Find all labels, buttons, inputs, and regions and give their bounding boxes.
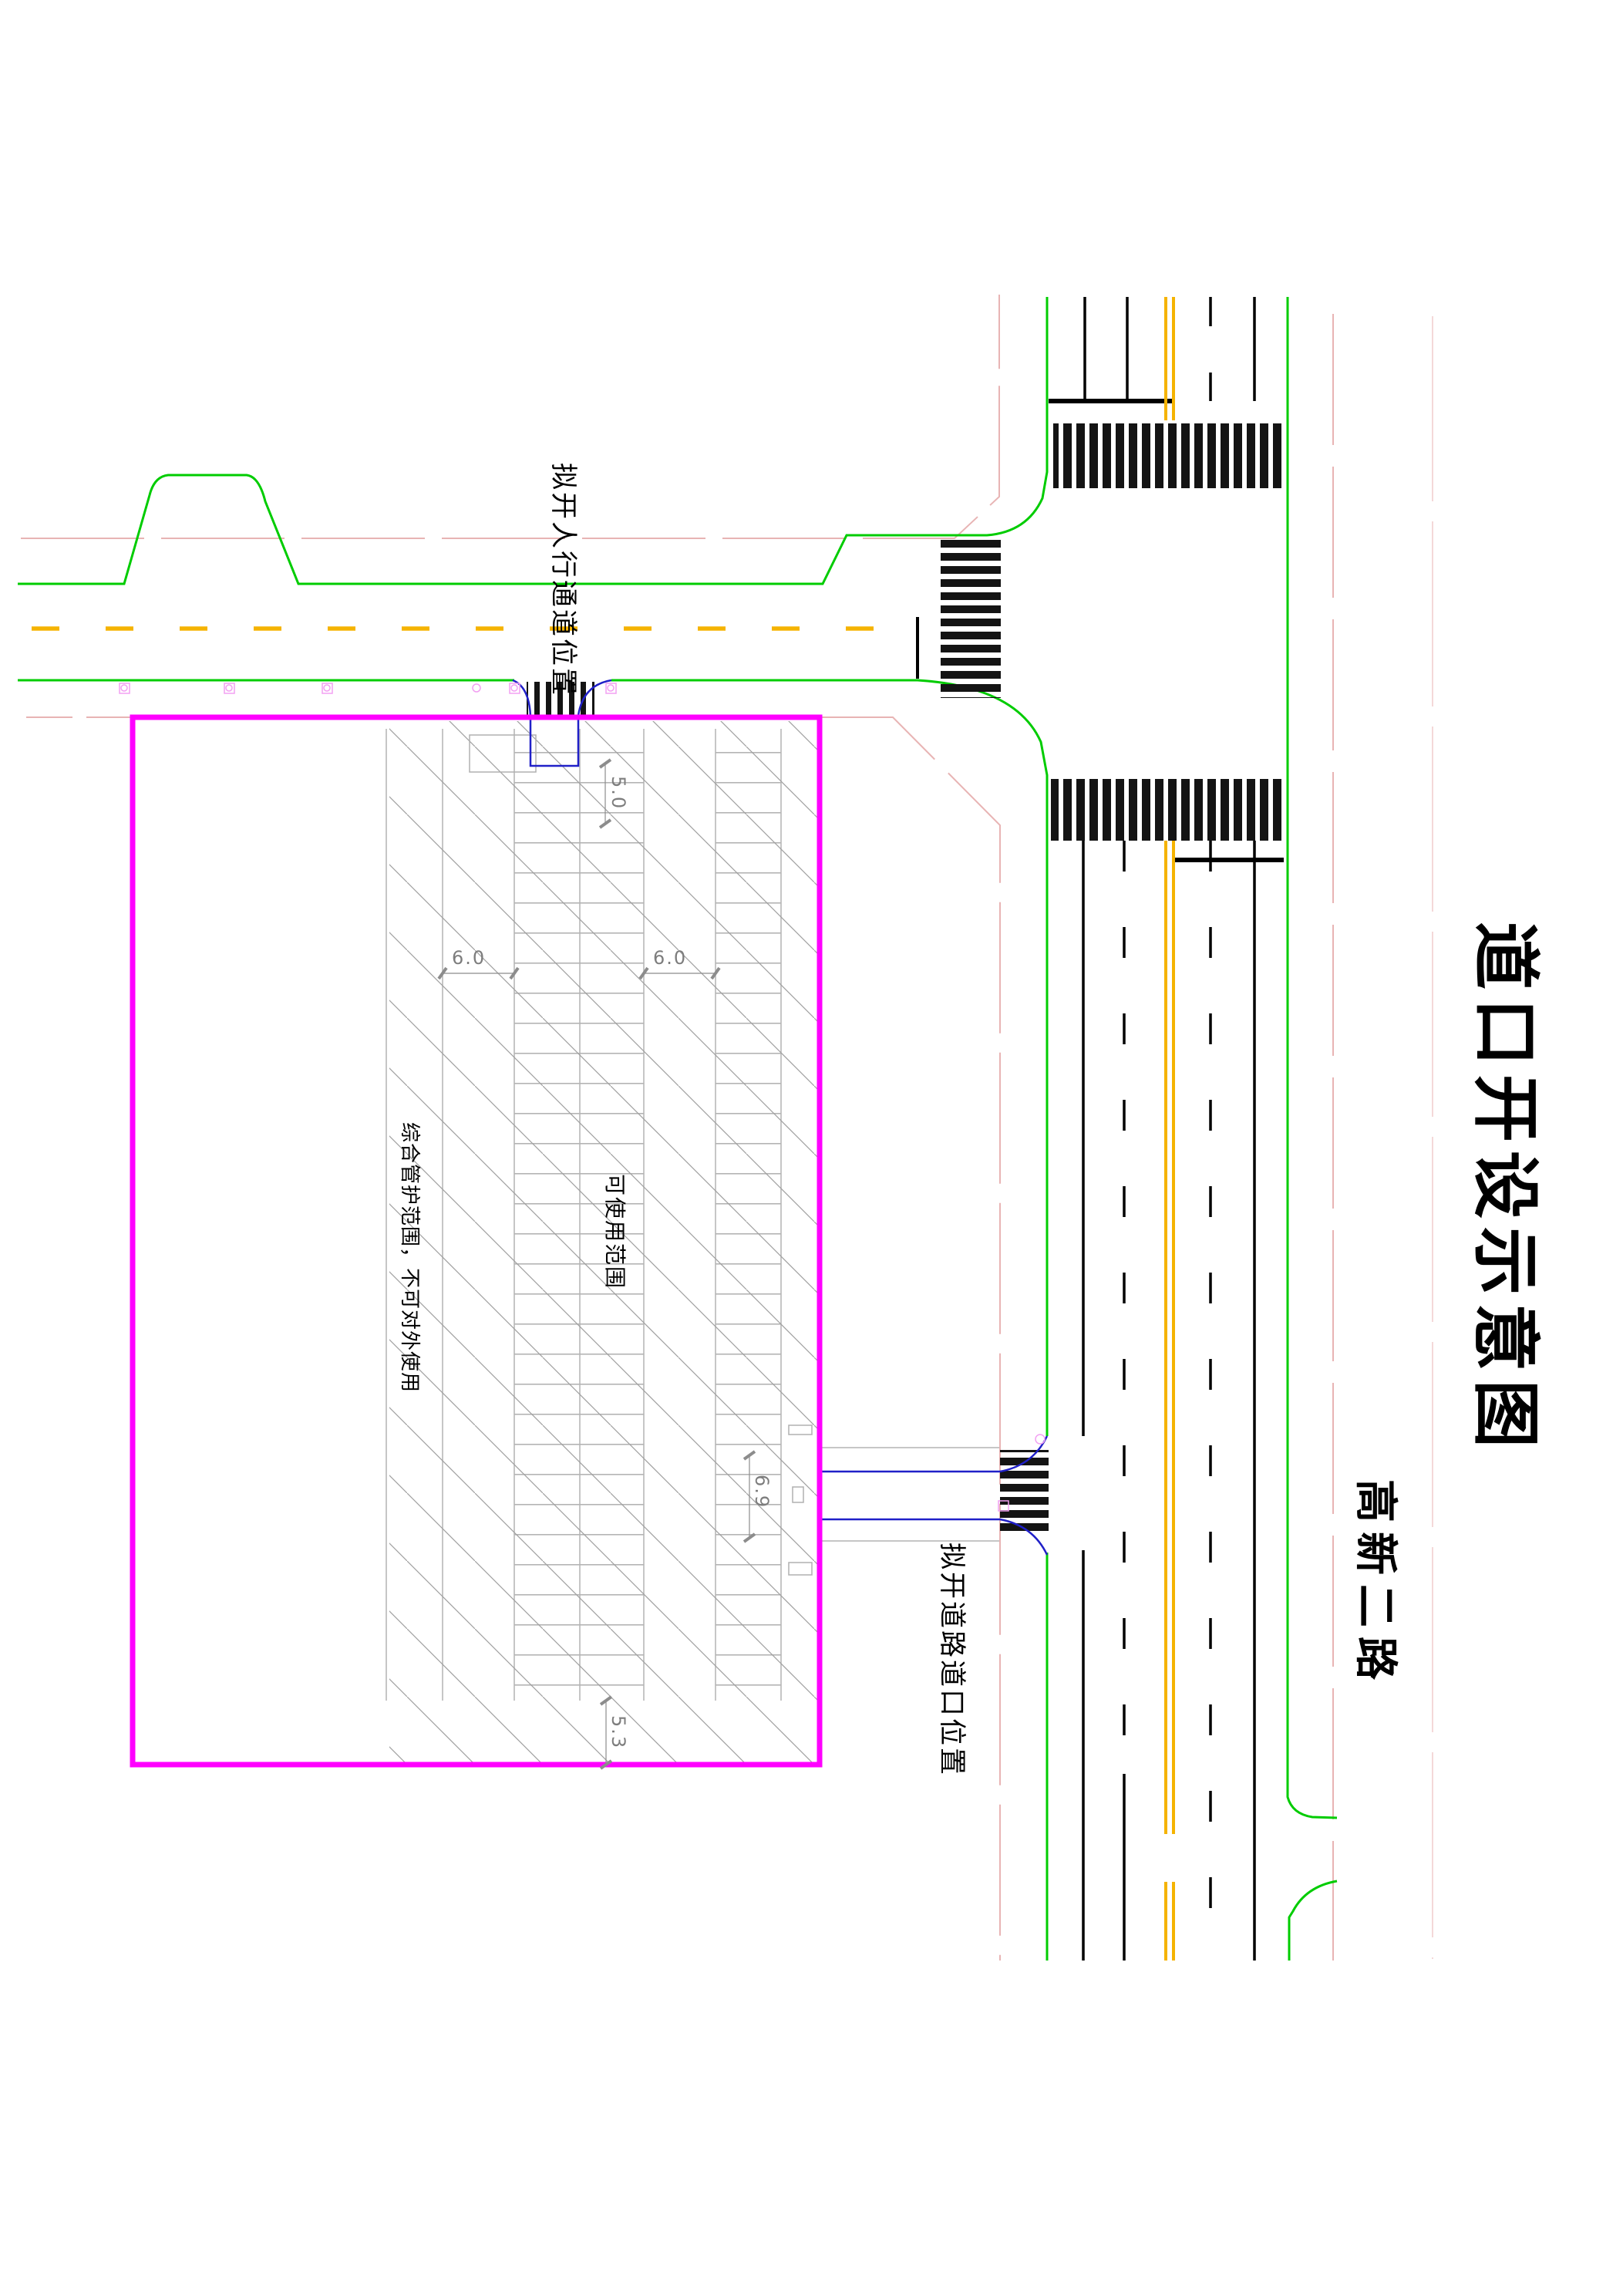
road-opening-label: 拟开道路道口位置 — [937, 1542, 965, 1797]
crosswalk-west-road — [941, 540, 1001, 698]
usable-zone-label: 可使用范围 — [603, 1174, 626, 1305]
dim-opening-width: 6.9 — [753, 1475, 771, 1521]
road-opening-schematic: 道口开设示意图 高新二路 拟开人行通道位置 拟开道路道口位置 综合管护范围，不可… — [0, 0, 1623, 2296]
pedestrian-passage-label: 拟开人行通道位置 — [548, 463, 577, 710]
dim-passage-width: 5.0 — [609, 776, 628, 822]
dim-aisle-right: 6.0 — [653, 949, 687, 967]
drawing-title: 道口开设示意图 — [1470, 922, 1541, 1477]
management-zone-label: 综合管护范围，不可对外使用 — [399, 1122, 420, 1400]
crosswalk-south — [1051, 779, 1282, 841]
dim-bottom-offset: 5.3 — [609, 1715, 628, 1762]
schematic-linework — [0, 0, 1623, 2296]
crosswalk-north — [1053, 423, 1285, 488]
dim-aisle-left: 6.0 — [452, 949, 486, 967]
road-name-label: 高新二路 — [1352, 1479, 1397, 1711]
